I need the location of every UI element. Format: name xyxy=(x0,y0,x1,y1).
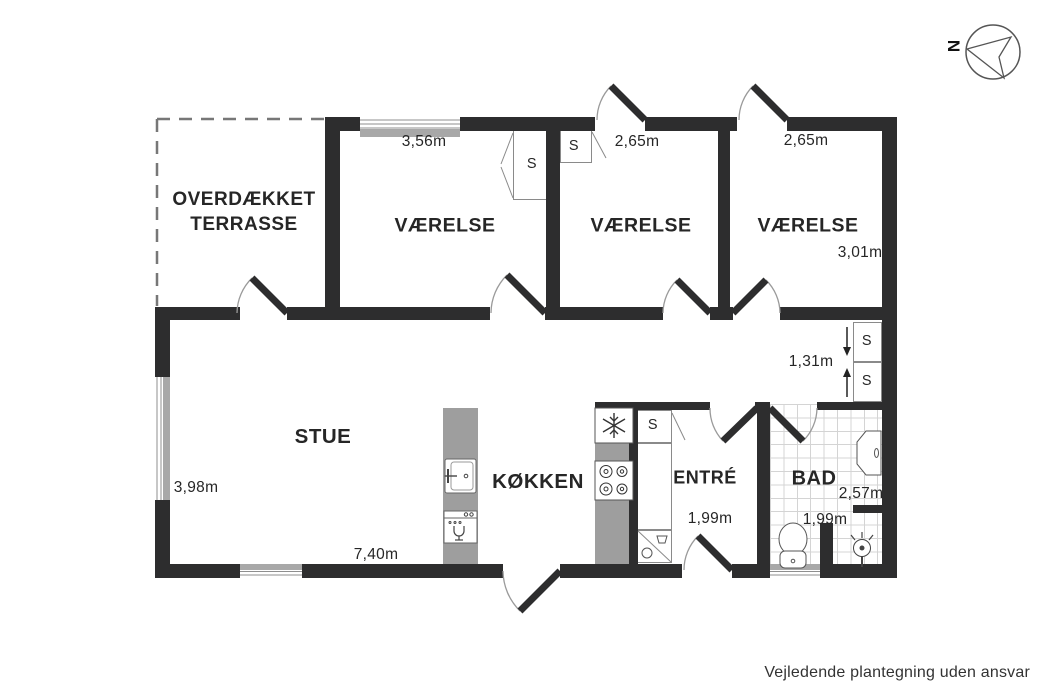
closet-label: S xyxy=(862,373,872,389)
room-label-stue: STUE xyxy=(295,425,352,449)
compass-circle xyxy=(966,25,1020,79)
north-arrow-icon xyxy=(967,37,1011,78)
room-label-vaerelse-2: VÆRELSE xyxy=(590,215,691,238)
room-label-entre: ENTRÉ xyxy=(673,468,737,489)
measurement-room3-depth: 3,01m xyxy=(838,244,883,262)
closet-label: S xyxy=(569,138,579,154)
measurement-room1-width: 3,56m xyxy=(402,133,447,151)
closet-label: S xyxy=(527,156,537,172)
washing-machine-icon xyxy=(638,531,671,562)
shower-icon xyxy=(851,532,873,567)
measurement-room3-width: 2,65m xyxy=(784,132,829,150)
stove-icon xyxy=(595,461,633,500)
measurement-bad-width: 2,57m xyxy=(839,485,884,503)
room-label-kokken: KØKKEN xyxy=(492,470,584,494)
bathroom-sink-icon xyxy=(857,431,881,475)
floor-plan: N OVERDÆKKET TERRASSE VÆRELSE VÆRELSE VÆ… xyxy=(0,0,1050,700)
sink-icon xyxy=(445,459,477,493)
room-label-vaerelse-1: VÆRELSE xyxy=(394,215,495,238)
dishwasher-icon xyxy=(444,511,477,543)
measurement-stue-depth: 3,98m xyxy=(174,479,219,497)
compass: N xyxy=(945,25,1021,79)
room-label-vaerelse-3: VÆRELSE xyxy=(757,215,858,238)
freezer-icon xyxy=(595,408,633,443)
measurement-hallway-depth: 1,31m xyxy=(789,353,834,371)
room-label-bad: BAD xyxy=(792,468,837,491)
room-label-terrace: OVERDÆKKET TERRASSE xyxy=(137,187,352,237)
closet-label: S xyxy=(862,333,872,349)
closet-direction-arrows xyxy=(843,327,851,397)
measurement-room2-width: 2,65m xyxy=(615,133,660,151)
measurement-entre-width: 1,99m xyxy=(688,510,733,528)
compass-north-label: N xyxy=(945,40,964,52)
toilet-icon xyxy=(779,523,807,568)
closet-label: S xyxy=(648,417,658,433)
closet-fold-lines xyxy=(501,132,685,440)
measurement-stue-width: 7,40m xyxy=(354,546,399,564)
measurement-bad-depth: 1,99m xyxy=(803,511,848,529)
disclaimer-text: Vejledende plantegning uden ansvar xyxy=(764,664,1030,682)
